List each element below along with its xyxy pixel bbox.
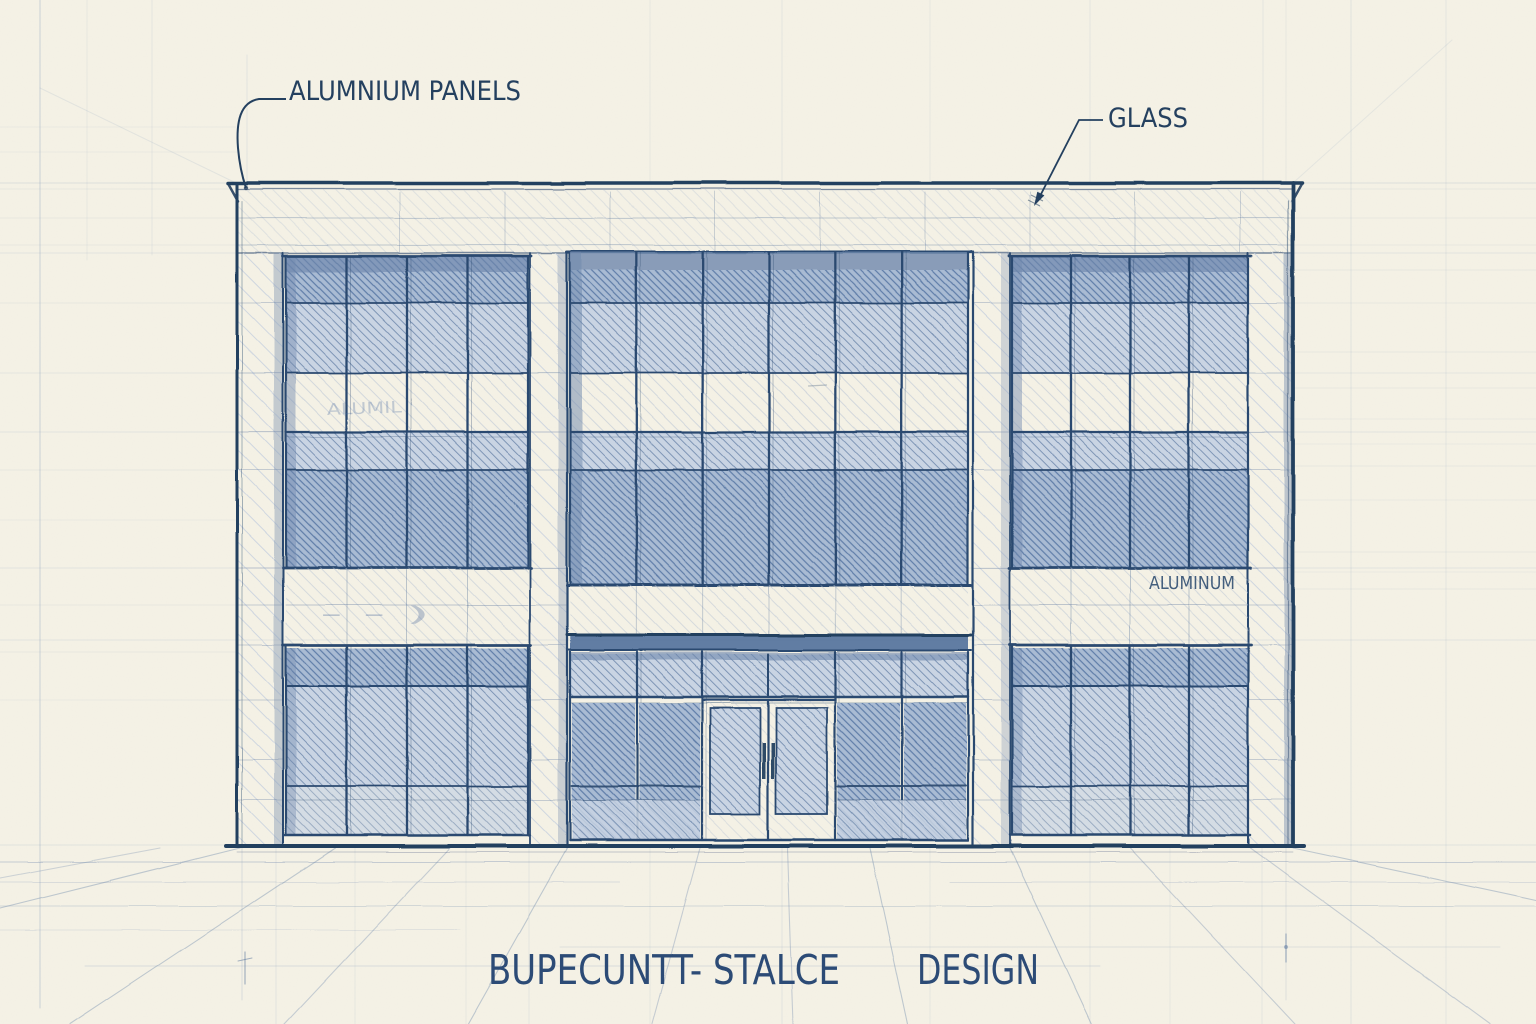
blueprint-sketch: ALUMNIUM PANELS GLASS ALUMINUM ALUMIL - … [0, 0, 1536, 1024]
panels-leader-end-dot [244, 186, 248, 190]
glass-label: GLASS [1108, 103, 1188, 134]
spandrel-material-label: ALUMINUM [1149, 573, 1235, 594]
faint-scribble-window-band: ALUMIL [326, 397, 402, 419]
title-text-left: BUPECUNTT- STALCE [488, 946, 840, 994]
faint-scribble-spandrel: - - ) [320, 602, 430, 626]
panels-label: ALUMNIUM PANELS [289, 76, 521, 107]
title-text-right: DESIGN [917, 946, 1039, 994]
elevation-drawing: ALUMNIUM PANELS GLASS ALUMINUM ALUMIL - … [0, 0, 1536, 1024]
building-facade [226, 183, 1304, 852]
